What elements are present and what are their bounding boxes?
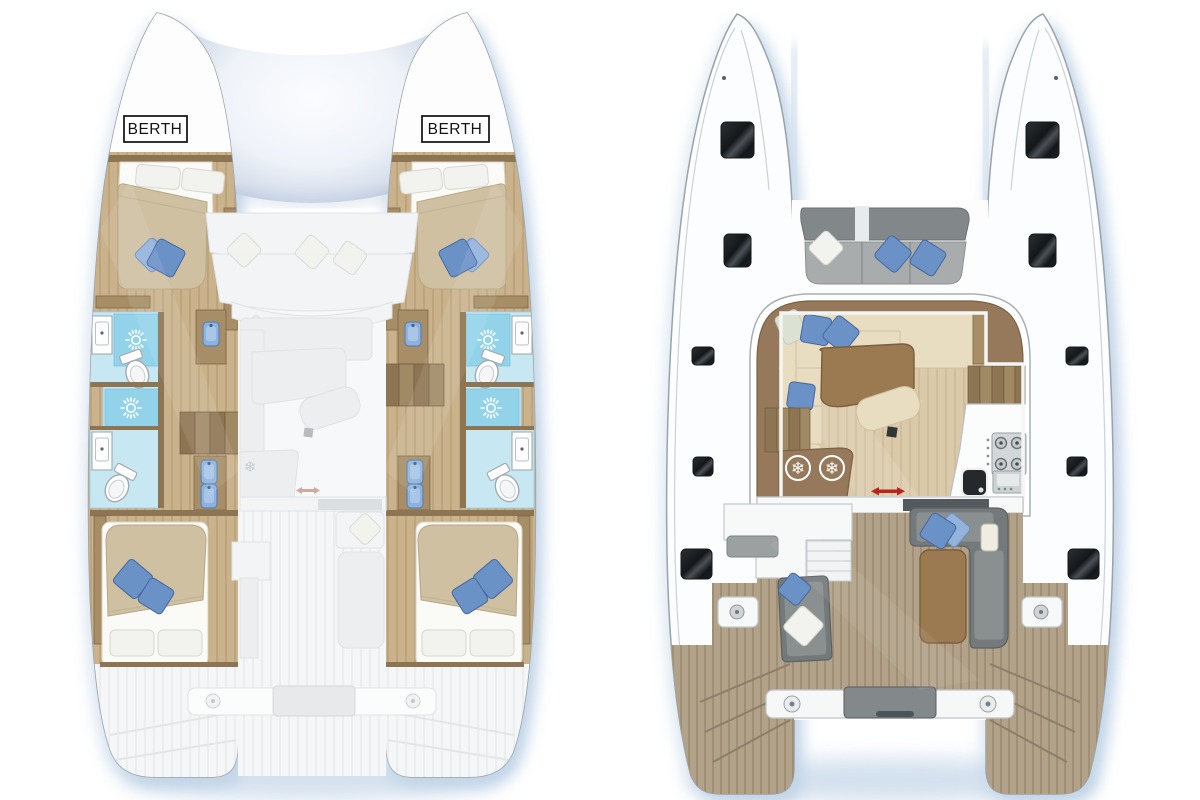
ghost-cockpit-table bbox=[338, 552, 384, 648]
hatch-window bbox=[693, 457, 713, 476]
lower-deck-plan: ❄ BERTH BERTH bbox=[83, 0, 544, 800]
sink-counter bbox=[512, 432, 532, 470]
sink-counter bbox=[512, 316, 532, 354]
berth-label-port-text: BERTH bbox=[128, 121, 183, 138]
support-post bbox=[886, 426, 897, 437]
ghost-fridge-snowflake-icon: ❄ bbox=[244, 459, 257, 476]
hatch-window bbox=[1066, 347, 1088, 365]
cockpit-table bbox=[920, 550, 966, 643]
vanity-sink bbox=[203, 322, 219, 346]
sink-counter bbox=[92, 316, 112, 354]
bed-pillow bbox=[443, 164, 489, 190]
bed-pillow bbox=[470, 630, 514, 656]
seat-pad-cream bbox=[981, 524, 998, 551]
berth-label-port: BERTH bbox=[124, 116, 187, 142]
bed-pillow bbox=[181, 168, 225, 195]
hatch-window bbox=[724, 234, 751, 267]
saloon: ❄ ❄ bbox=[750, 294, 1030, 516]
forward-cockpit bbox=[801, 206, 969, 284]
module-cushion bbox=[727, 536, 778, 557]
hatch-window bbox=[692, 347, 714, 365]
bed-pillow bbox=[399, 168, 443, 195]
ghost-post bbox=[303, 427, 313, 437]
bed-pillow bbox=[422, 630, 466, 656]
bed-pillow bbox=[110, 630, 154, 656]
hatch-window bbox=[1068, 549, 1099, 579]
galley-sink bbox=[962, 469, 987, 496]
bed-pillow bbox=[158, 630, 202, 656]
hatch-window bbox=[721, 122, 754, 158]
floorplans-svg: ❄ BERTH BERTH bbox=[0, 0, 1200, 800]
pillow-blue bbox=[786, 381, 815, 410]
stairs-to-starboard-hull bbox=[968, 366, 1025, 404]
hatch-window bbox=[1067, 457, 1087, 476]
fridge-snowflake-icon: ❄ bbox=[791, 459, 805, 478]
hatch-window bbox=[1029, 234, 1056, 267]
ghost-transom bbox=[188, 686, 436, 716]
vanity-sink bbox=[405, 322, 421, 346]
bed-pillow bbox=[135, 164, 181, 190]
stairs-to-port-hull bbox=[765, 408, 810, 452]
shower bbox=[105, 389, 159, 427]
hatch-window bbox=[1026, 122, 1059, 158]
fridge-snowflake-icon: ❄ bbox=[825, 459, 839, 478]
sink-counter bbox=[92, 432, 112, 470]
main-deck-plan: ❄ ❄ bbox=[660, 14, 1122, 800]
shower bbox=[465, 389, 519, 427]
catamaran-floorplan-canvas: ❄ BERTH BERTH bbox=[0, 0, 1200, 800]
fridge-counter: ❄ ❄ bbox=[779, 448, 853, 497]
berth-label-starboard-text: BERTH bbox=[428, 121, 483, 138]
berth-label-starboard: BERTH bbox=[422, 116, 489, 142]
hatch-window bbox=[681, 549, 712, 579]
fwd-bulkhead-port bbox=[88, 155, 240, 162]
transom-beam bbox=[766, 687, 1014, 718]
